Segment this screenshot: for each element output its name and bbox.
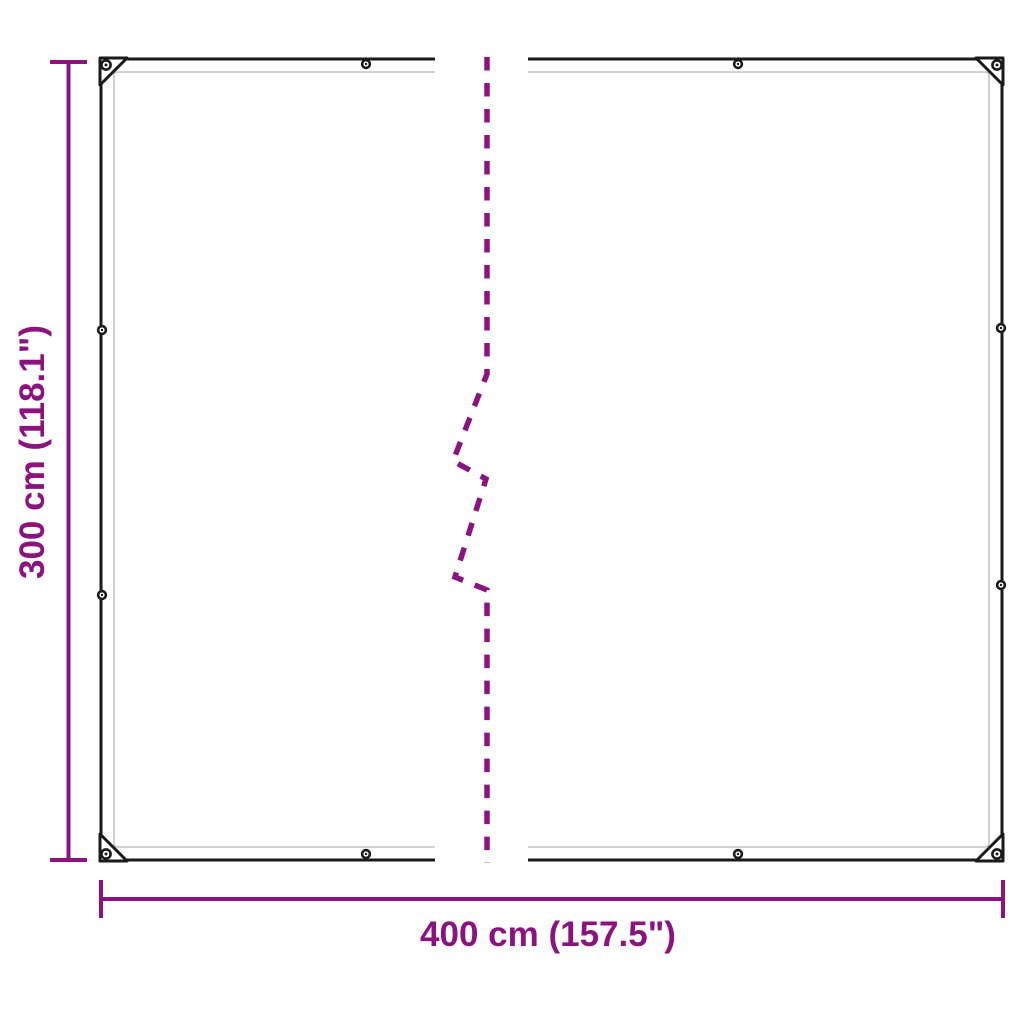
break-line bbox=[453, 57, 487, 863]
tarp-right-panel bbox=[528, 59, 1002, 860]
edge-grommet-top-right bbox=[733, 59, 743, 69]
tarp-left-inner-seam bbox=[114, 72, 435, 847]
tarpaulin-dimension-drawing: 300 cm (118.1") 400 cm (157.5") bbox=[0, 0, 1024, 1024]
edge-grommet-right-upper bbox=[996, 323, 1006, 333]
edge-grommet-bottom-left bbox=[361, 849, 371, 859]
eyelet-center bbox=[996, 853, 999, 856]
eyelet-center bbox=[105, 853, 108, 856]
height-dimension-label: 300 cm (118.1") bbox=[13, 325, 52, 579]
edge-grommet-top-left bbox=[361, 59, 371, 69]
tarp-right-inner-seam bbox=[528, 72, 989, 847]
edge-grommet-right-lower bbox=[996, 580, 1006, 590]
product-dimension-diagram: 300 cm (118.1") 400 cm (157.5") bbox=[0, 0, 1024, 1024]
edge-grommet-left-upper bbox=[97, 325, 107, 335]
width-dimension: 400 cm (157.5") bbox=[101, 880, 1003, 954]
eyelet-center bbox=[996, 64, 999, 67]
tarp-left-outline bbox=[101, 59, 435, 860]
height-dimension: 300 cm (118.1") bbox=[13, 62, 87, 860]
width-dimension-label: 400 cm (157.5") bbox=[420, 915, 676, 954]
eyelet-center bbox=[105, 64, 108, 67]
edge-grommet-left-lower bbox=[97, 590, 107, 600]
edge-grommet-bottom-right bbox=[733, 849, 743, 859]
tarp-right-outline bbox=[528, 59, 1002, 860]
tarp-left-panel bbox=[101, 59, 435, 860]
